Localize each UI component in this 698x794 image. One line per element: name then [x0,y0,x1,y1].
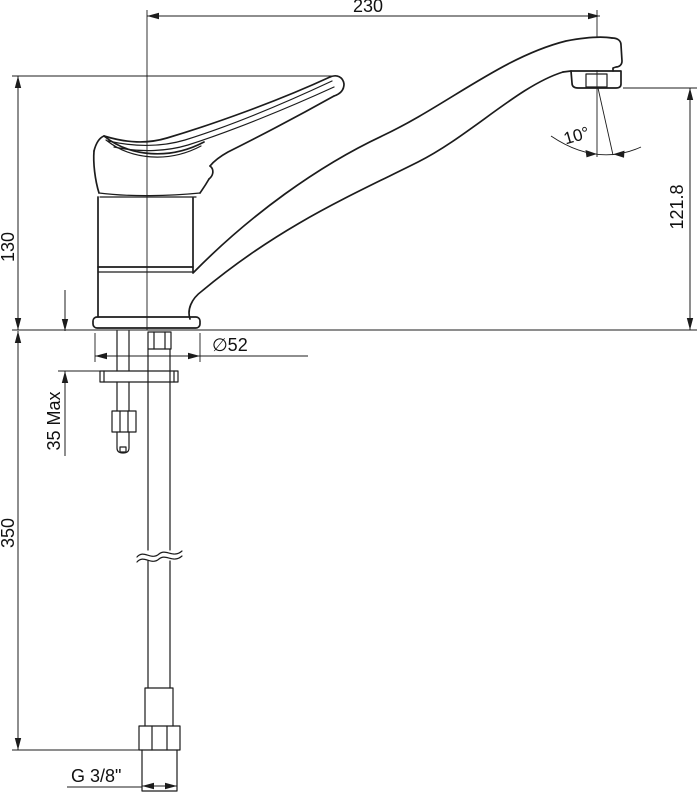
angle-arrow-right [613,151,625,158]
stud-nut-facets [120,411,128,432]
stud-nut [112,411,136,432]
spout-head-joint [563,71,571,72]
spout-head [612,38,622,71]
pipe-break-1 [137,551,182,557]
lever-tip [330,76,344,96]
dim-outlet-height-label: 121.8 [667,184,687,229]
handle-cap-right-edge [200,179,209,193]
handle-skirt [99,193,200,196]
clamp-washer-ends [104,371,174,382]
thread-end-body [142,750,177,791]
dim-base-diameter-label: ∅52 [212,335,248,355]
handle-cap-corner [94,136,104,151]
mounting-parts [93,317,200,453]
dimension-labels: 230 130 121.8 10° ∅52 35 Max 350 G 3/8" [0,0,687,786]
top-connector-facets [154,332,165,349]
dim-pipe-length-label: 350 [0,518,18,548]
stud-tip-slot [120,447,126,452]
dim-angle-label: 10° [562,123,592,148]
lever-nose [209,166,213,179]
stud-tip [117,432,129,453]
top-connector-nut [148,332,171,349]
clamp-washer [100,371,178,382]
angle-stream-line [598,88,613,155]
spout-upper-edge [193,37,612,273]
faucet-technical-drawing-page: 230 130 121.8 10° ∅52 35 Max 350 G 3/8" [0,0,698,794]
spout-lower-edge [189,72,563,319]
base-flange [93,317,200,328]
dim-height-label: 130 [0,232,18,262]
hose-sleeve [145,688,173,726]
angle-arrow-left [586,150,598,157]
faucet-dimension-drawing: 230 130 121.8 10° ∅52 35 Max 350 G 3/8" [0,0,698,794]
hose-hex-nut [139,726,180,750]
supply-pipe [137,349,182,791]
dim-spout-reach-label: 230 [353,0,383,16]
dimension-lines [18,16,690,787]
extension-lines [12,10,697,750]
hose-hex-facets [152,726,167,750]
spout [189,37,622,319]
pipe-lines [148,349,170,688]
faucet-outline [93,37,622,791]
lever-top-edge [104,77,330,142]
aerator-insert [586,74,607,87]
handle-lever [94,76,344,196]
pipe-break-2 [137,556,182,562]
dim-thread-label: G 3/8" [71,766,121,786]
dim-mount-thickness-label: 35 Max [44,391,64,450]
handle-cap-left-edge [94,151,99,193]
